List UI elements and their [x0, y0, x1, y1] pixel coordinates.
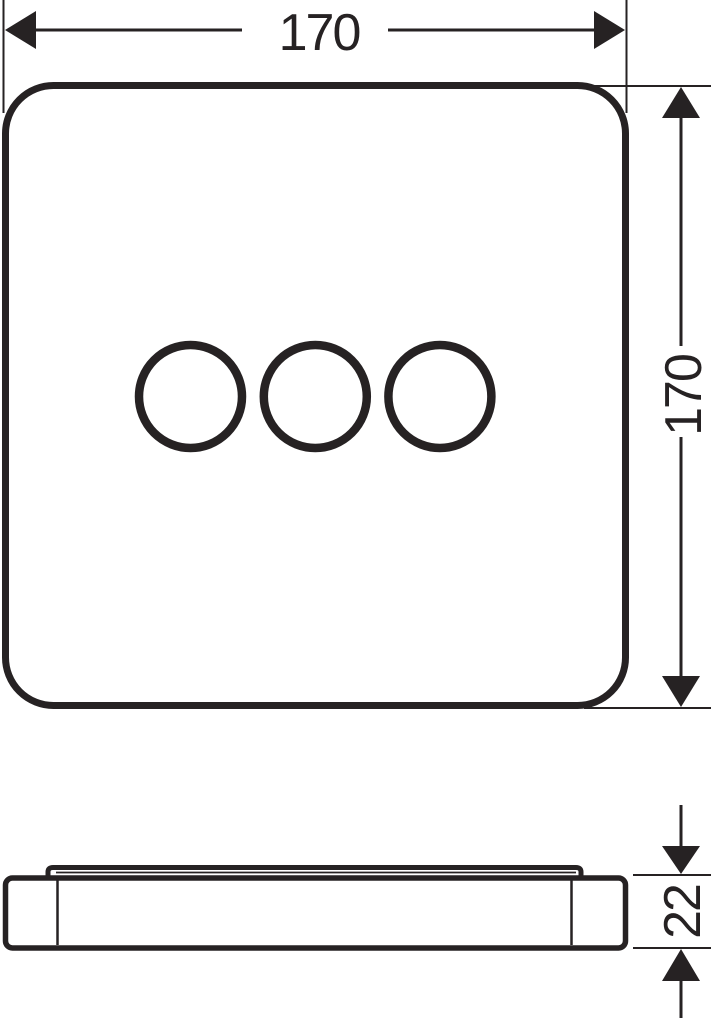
svg-text:170: 170 [655, 355, 713, 436]
svg-text:22: 22 [654, 885, 712, 939]
svg-text:170: 170 [279, 4, 360, 62]
